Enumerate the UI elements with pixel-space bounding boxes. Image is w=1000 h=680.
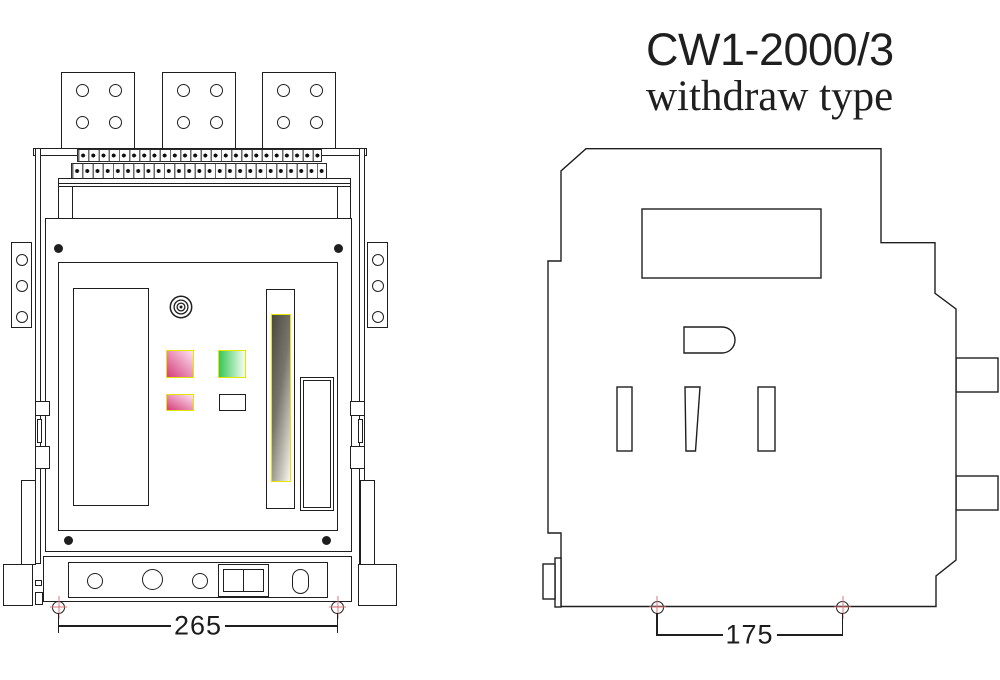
rear-terminal-stub: [956, 358, 998, 392]
drawing-canvas: 265 175 CW1-2000/3 withd: [0, 0, 1000, 680]
center-mark-horizontal: [649, 607, 666, 608]
side-body-outline: [548, 149, 956, 607]
product-model-title: CW1-2000/3: [646, 24, 894, 76]
extension-line: [656, 613, 657, 636]
extension-line: [842, 613, 843, 636]
product-type-subtitle: withdraw type: [646, 72, 893, 121]
center-mark-horizontal: [834, 607, 851, 608]
center-mark-icon: [651, 601, 664, 614]
side-width-dimension: 175: [722, 620, 776, 651]
center-mark-icon: [836, 601, 849, 614]
rear-terminal-stub: [956, 476, 998, 510]
guide-block: [543, 564, 555, 599]
guide-block: [555, 558, 561, 607]
